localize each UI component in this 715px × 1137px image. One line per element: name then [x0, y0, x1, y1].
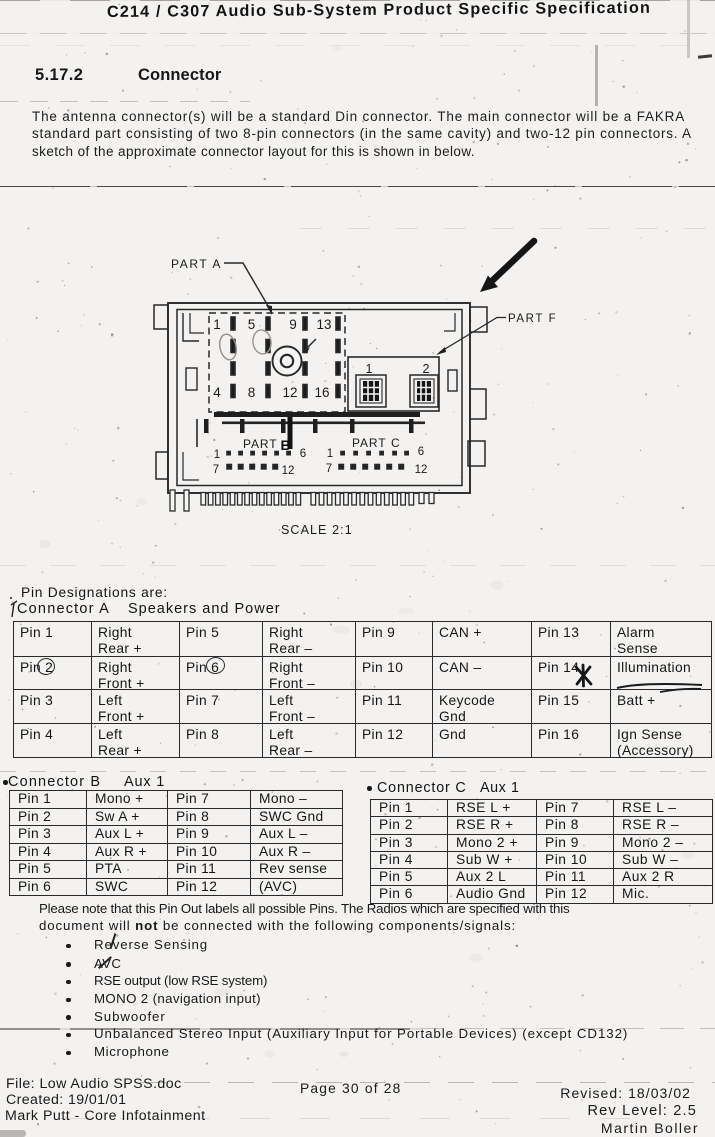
- svg-text:12: 12: [282, 465, 295, 477]
- svg-text:PART: PART: [243, 437, 278, 451]
- svg-text:13: 13: [316, 317, 331, 332]
- svg-text:12: 12: [415, 464, 428, 476]
- svg-text:1: 1: [214, 449, 220, 461]
- svg-text:1: 1: [213, 317, 221, 332]
- svg-text:7: 7: [326, 463, 332, 475]
- svg-text:6: 6: [300, 448, 306, 460]
- svg-text:5: 5: [248, 317, 256, 332]
- svg-text:6: 6: [418, 446, 424, 458]
- svg-text:PART: PART: [352, 436, 387, 450]
- svg-text:4: 4: [213, 385, 221, 400]
- svg-text:8: 8: [248, 385, 256, 400]
- svg-text:16: 16: [314, 385, 329, 400]
- svg-text:B: B: [281, 437, 291, 453]
- svg-text:9: 9: [289, 317, 297, 332]
- svg-text:1: 1: [327, 448, 333, 460]
- svg-text:2: 2: [423, 362, 430, 376]
- svg-text:12: 12: [282, 385, 297, 400]
- svg-text:SCALE 2:1: SCALE 2:1: [281, 523, 353, 537]
- svg-text:PART A: PART A: [171, 257, 222, 271]
- svg-text:PART F: PART F: [508, 313, 557, 325]
- svg-text:1: 1: [366, 362, 373, 376]
- svg-text:C: C: [391, 436, 401, 450]
- svg-text:7: 7: [213, 464, 219, 476]
